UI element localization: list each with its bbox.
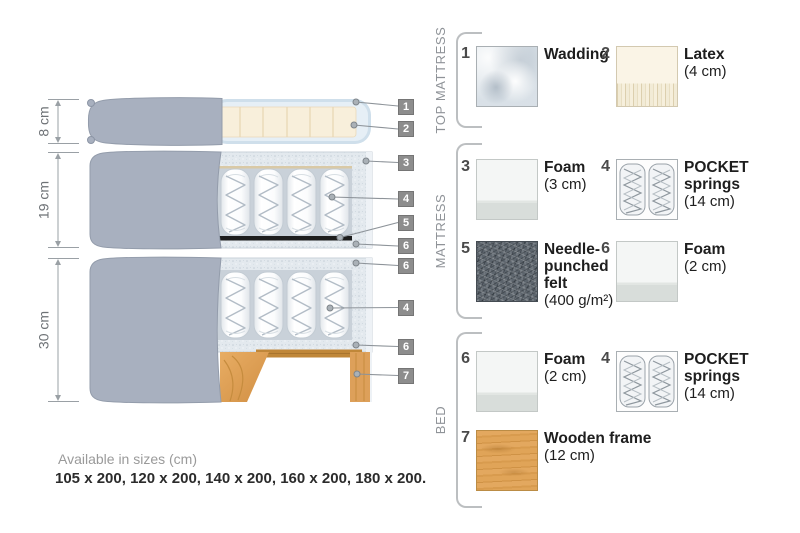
section-title-mattress: MATTRESS	[433, 143, 449, 319]
legend-number: 5	[458, 241, 470, 257]
wadding-swatch	[476, 46, 538, 107]
legend-item-pocket-springs: 4 POCKET springs (14 cm)	[598, 159, 749, 220]
dimension-lines	[48, 100, 79, 402]
bed-fabric	[90, 257, 221, 403]
legend-number: 6	[598, 241, 610, 257]
legend-label: Foam	[544, 159, 587, 176]
layer-tag-4: 4	[398, 191, 414, 207]
legend-label: POCKET springs	[684, 159, 749, 193]
legend-item-felt: 5 Needle- punched felt (400 g/m²)	[458, 241, 613, 310]
legend-item-bed-foam: 6 Foam (2 cm)	[458, 351, 587, 412]
legend-item-latex: 2 Latex (4 cm)	[598, 46, 727, 107]
bed-construction-infographic: 8 cm 19 cm 30 cm 1 2 3 4 5 6 6 4 6 7 TOP…	[0, 0, 800, 533]
legend-size: (4 cm)	[684, 63, 727, 81]
layer-tag-3: 3	[398, 155, 414, 171]
legend-label: Wooden frame	[544, 430, 651, 447]
legend-size: (12 cm)	[544, 447, 651, 465]
foam-swatch	[476, 351, 538, 412]
foam-swatch	[476, 159, 538, 220]
legend-number: 4	[598, 351, 610, 367]
layer-tag-1: 1	[398, 99, 414, 115]
legend-item-bed-springs: 4 POCKET springs (14 cm)	[598, 351, 749, 412]
foam-swatch	[616, 241, 678, 302]
wooden-frame	[220, 350, 370, 403]
legend-item-foam-3cm: 3 Foam (3 cm)	[458, 159, 587, 220]
pocket-springs-swatch	[616, 159, 678, 220]
top-mattress-section	[88, 98, 372, 146]
dim-label-8cm: 8 cm	[36, 106, 52, 136]
latex-layer	[216, 107, 356, 137]
pocket-springs-swatch	[616, 351, 678, 412]
layer-tag-6b: 6	[398, 258, 414, 274]
pocket-springs-drawing	[617, 160, 677, 219]
layer-tag-4b: 4	[398, 300, 414, 316]
available-sizes-note: Available in sizes (cm)	[58, 451, 197, 467]
legend-number: 2	[598, 46, 610, 62]
layer-tag-5: 5	[398, 215, 414, 231]
mattress-section	[90, 151, 372, 249]
wood-swatch	[476, 430, 538, 491]
dim-label-19cm: 19 cm	[36, 181, 52, 219]
layer-tag-6c: 6	[398, 339, 414, 355]
layer-tag-7: 7	[398, 368, 414, 384]
legend-item-foam-2cm: 6 Foam (2 cm)	[598, 241, 727, 302]
needle-punched-felt-layer	[218, 236, 352, 241]
legend-label: Latex	[684, 46, 727, 63]
legend-number: 6	[458, 351, 470, 367]
section-title-bed: BED	[433, 332, 449, 508]
legend-size: (14 cm)	[684, 193, 749, 211]
available-sizes-list: 105 x 200, 120 x 200, 140 x 200, 160 x 2…	[55, 470, 426, 487]
legend-item-wooden-frame: 7 Wooden frame (12 cm)	[458, 430, 651, 491]
layer-tag-6: 6	[398, 238, 414, 254]
layer-tag-2: 2	[398, 121, 414, 137]
legend-number: 4	[598, 159, 610, 175]
legend-number: 1	[458, 46, 470, 62]
felt-swatch	[476, 241, 538, 302]
legend-label: Foam	[684, 241, 727, 258]
legend-label: POCKET springs	[684, 351, 749, 385]
legend-number: 3	[458, 159, 470, 175]
bed-section	[90, 257, 372, 403]
pocket-springs-drawing	[617, 352, 677, 411]
legend-number: 7	[458, 430, 470, 446]
legend-size: (14 cm)	[684, 385, 749, 403]
legend-size: (3 cm)	[544, 176, 587, 194]
dim-label-30cm: 30 cm	[36, 311, 52, 349]
mattress-fabric	[90, 151, 221, 249]
legend-item-wadding: 1 Wadding	[458, 46, 609, 107]
legend-size: (2 cm)	[544, 368, 587, 386]
legend-label: Foam	[544, 351, 587, 368]
legend-size: (2 cm)	[684, 258, 727, 276]
top-mattress-fabric	[88, 98, 222, 146]
latex-swatch	[616, 46, 678, 107]
